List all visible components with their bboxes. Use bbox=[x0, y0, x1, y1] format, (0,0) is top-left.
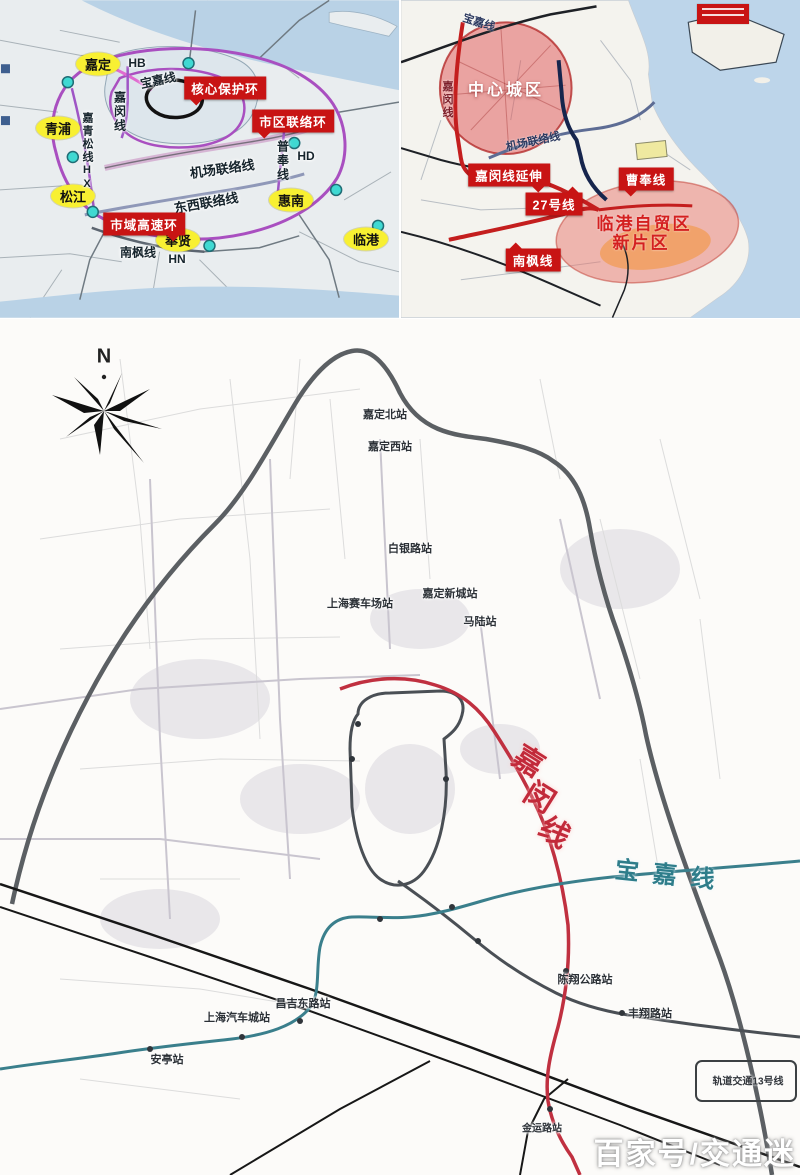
region-badge-huinan: 惠南 bbox=[269, 189, 313, 212]
line-label-nanfeng: 南枫线 bbox=[120, 244, 156, 261]
banner-pointer bbox=[166, 235, 180, 249]
line-label-pufeng: 普奉线 bbox=[275, 140, 292, 182]
banner-core-protection-ring: 核心保护环 bbox=[184, 77, 266, 100]
region-badge-qingpu: 青浦 bbox=[36, 117, 80, 140]
banner-text: 核心保护环 bbox=[191, 83, 259, 97]
compass-icon bbox=[52, 373, 162, 463]
line-label-hb: HB bbox=[128, 56, 145, 70]
urban-patches bbox=[100, 529, 680, 949]
airport-block bbox=[636, 141, 667, 160]
regional-map-artwork bbox=[0, 0, 399, 318]
area-label-central-city: 中心城区 bbox=[468, 76, 544, 100]
area-label-lingang-2: 新片区 bbox=[613, 229, 670, 254]
map-marker-block bbox=[1, 116, 10, 125]
watermark: 百家号/交通迷 bbox=[594, 1129, 796, 1173]
new-lines-artwork bbox=[401, 0, 800, 318]
station-fengxiang: 丰翔路站 bbox=[628, 1005, 672, 1021]
station-jinyunlu: 金运路站 bbox=[522, 1120, 562, 1135]
banner-pointer bbox=[509, 236, 523, 250]
hangzhou-bay bbox=[0, 287, 399, 318]
station-changji: 昌吉东路站 bbox=[276, 995, 331, 1011]
banner-text: 市域高速环 bbox=[110, 219, 178, 233]
station-anting: 安亭站 bbox=[151, 1051, 184, 1067]
banner-text: 曹奉线 bbox=[626, 174, 667, 188]
banner-line-27: 27号线 bbox=[526, 193, 583, 216]
banner-text: 市区联络环 bbox=[259, 116, 327, 130]
banner-text: 27号线 bbox=[533, 199, 576, 213]
station-qichecheng: 上海汽车城站 bbox=[204, 1009, 270, 1025]
baojia-line-teal bbox=[0, 861, 800, 1069]
station-jiadingbei: 嘉定北站 bbox=[363, 406, 407, 422]
banner-jiamin-extension: 嘉闵线延伸 bbox=[468, 164, 550, 187]
line-label-jiaqingsong: 嘉青松线HX bbox=[79, 112, 95, 192]
banner-pointer bbox=[189, 99, 203, 113]
station-baiyinlu: 白银路站 bbox=[388, 540, 432, 556]
station-malu: 马陆站 bbox=[464, 613, 497, 629]
station-chenxiang: 陈翔公路站 bbox=[558, 971, 613, 987]
region-badge-lingang: 临港 bbox=[344, 228, 388, 251]
line-label-jiamin: 嘉闵线 bbox=[439, 81, 455, 120]
banner-text: 南枫线 bbox=[513, 255, 554, 269]
banner-nanfeng-line: 南枫线 bbox=[506, 249, 561, 272]
mesh-roads-light bbox=[40, 359, 720, 1099]
panel-jiading-detail-map: N 嘉定北站 嘉定西站 白银路站 上海赛车场站 嘉定新城站 马陆站 上海汽车城站… bbox=[0, 319, 800, 1175]
panel-regional-rings-map: 嘉定 青浦 松江 奉贤 惠南 临港 核心保护环 市区联络环 市域高速环 HB 宝… bbox=[0, 0, 399, 318]
line-label-hd: HD bbox=[297, 149, 314, 163]
banner-text: 嘉闵线延伸 bbox=[475, 170, 543, 184]
station-jiadingxincheng: 嘉定新城站 bbox=[423, 585, 478, 601]
line-label-hn: HN bbox=[168, 252, 185, 266]
map-marker-block bbox=[1, 64, 10, 73]
compass-north-label: N bbox=[97, 346, 111, 369]
banner-caofeng-line: 曹奉线 bbox=[619, 168, 674, 191]
banner-city-expressway-ring: 市域高速环 bbox=[103, 213, 185, 236]
banner-urban-link-ring: 市区联络环 bbox=[252, 110, 334, 133]
inset-banner bbox=[697, 4, 749, 24]
region-badge-jiading: 嘉定 bbox=[76, 53, 120, 76]
small-island bbox=[754, 77, 770, 83]
banner-pointer bbox=[257, 132, 271, 146]
banner-pointer bbox=[565, 180, 579, 194]
banner-pointer bbox=[624, 190, 638, 204]
line-label-jiamin: 嘉闵线 bbox=[112, 91, 129, 133]
station-saichechang: 上海赛车场站 bbox=[327, 595, 393, 611]
panel-new-lines-map: 中心城区 临港自贸区 新片区 嘉闵线延伸 27号线 曹奉线 南枫线 宝嘉线 嘉闵… bbox=[401, 0, 800, 318]
transit-map-collage: 嘉定 青浦 松江 奉贤 惠南 临港 核心保护环 市区联络环 市域高速环 HB 宝… bbox=[0, 0, 800, 1175]
station-jiadingxi: 嘉定西站 bbox=[368, 438, 412, 454]
rail-line-note: 轨道交通13号线 bbox=[712, 1073, 783, 1088]
